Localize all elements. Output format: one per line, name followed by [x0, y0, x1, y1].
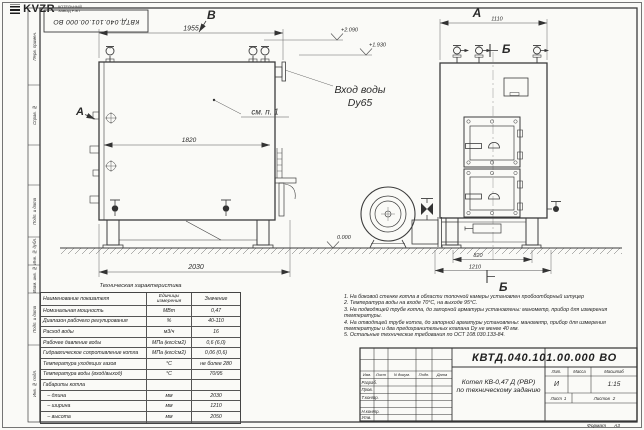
dim-1820: 1820	[182, 137, 197, 144]
spec-cell-unit: мм	[147, 391, 192, 402]
svg-text:Б: Б	[502, 42, 511, 56]
top-left-stamp: КВТД.040.101.00.000 ВО	[44, 10, 148, 32]
water-inlet-flange	[275, 62, 286, 81]
section-b-bottom: Б	[487, 270, 508, 294]
tb-col-list: Лист	[374, 371, 388, 379]
frame-label-perv-primen: Перв. примен.	[28, 8, 40, 85]
dim-1210: 1210	[469, 265, 482, 271]
svg-text:+1.930: +1.930	[369, 43, 387, 49]
spec-row: – длина мм 2030	[41, 391, 240, 402]
spec-cell-name: – длина	[41, 391, 147, 402]
tb-col-data: Дата	[432, 371, 452, 379]
technical-notes: 1. На боковой стенке котла в области топ…	[344, 294, 637, 339]
tb-row-razrab: Разраб.	[360, 379, 390, 387]
spec-row: Рабочее давление воды МПа (кгс/см2) 0,6 …	[41, 338, 240, 349]
spec-row: – ширина мм 1210	[41, 401, 240, 412]
spec-cell-name: – высота	[41, 412, 147, 423]
title-block-product-title: Котел КВ-0,47 Д (РВР) по техническому за…	[452, 374, 545, 400]
svg-text:+2.090: +2.090	[341, 28, 359, 34]
spec-table-title: Техническая характеристика	[40, 283, 241, 292]
spec-cell-name: Температура воды (вход/выход)	[41, 370, 147, 381]
fan-duct-valve	[421, 199, 433, 221]
spec-cell-value: 70/95	[192, 370, 240, 381]
tb-lit-label: Лит.	[545, 367, 568, 376]
frame-label-vzam-inv: Взам. инв. №	[28, 265, 40, 293]
note-line: 4. На отводящей трубе котла, до запорной…	[344, 320, 637, 333]
boiler-front-view	[361, 46, 561, 263]
frame-label-podp-data-1: Подп. и дата	[28, 185, 40, 237]
tb-col-podp: Подп.	[416, 371, 432, 379]
spec-cell-unit: мм	[147, 401, 192, 412]
spec-cell-unit: °С	[147, 370, 192, 381]
spec-row: – высота мм 2050	[41, 412, 240, 423]
drain-valves-side	[110, 200, 231, 216]
spec-cell-unit	[147, 380, 192, 391]
spec-cell-name: Рабочее давление воды	[41, 338, 147, 349]
note-line: 5. Остальные технические требования по О…	[344, 332, 637, 338]
dim-1955: 1955	[183, 26, 199, 33]
frame-label-inv-dubl: Инв. № дубл.	[28, 237, 40, 265]
spec-cell-name: – ширина	[41, 401, 147, 412]
spec-cell-name: Расход воды	[41, 327, 147, 338]
dim-820: 820	[473, 253, 483, 259]
side-bracket	[275, 148, 296, 216]
spec-cell-value: 0,06 (0,6)	[192, 348, 240, 359]
frame-label-inv-podl: Инв. № подл.	[28, 345, 40, 422]
svg-text:0.000: 0.000	[337, 235, 352, 241]
spec-row: Температура воды (вход/выход) °С 70/95	[41, 370, 240, 381]
blower-fan	[361, 187, 458, 248]
elevation-upper: +2.090	[264, 28, 359, 41]
spec-cell-name: Габариты котла	[41, 380, 147, 391]
callout-see-note: см. п. 1	[251, 108, 278, 117]
safety-valves-front	[453, 46, 549, 64]
tb-mass-label: Масса	[568, 367, 591, 376]
spec-cell-value: 40-110	[192, 317, 240, 328]
spec-cell-name: Диапазон рабочего регулирования	[41, 317, 147, 328]
tb-row-nkontr: Н.контр.	[360, 408, 390, 415]
spec-cell-unit: мм	[147, 412, 192, 423]
spec-header-row: Наименование показателя Единицы измерени…	[41, 293, 240, 306]
dimensions-side: 1955 1820 2030	[99, 26, 290, 278]
spec-cell-name: Температура уходящих газов	[41, 359, 147, 370]
spec-col-value: Значение	[192, 293, 240, 306]
front-legs	[442, 218, 541, 248]
frame-label-podp-data-2: Подп. и дата	[28, 293, 40, 345]
crosshair-marks	[105, 112, 117, 172]
elevation-lower: +1.930	[299, 43, 387, 56]
tb-sheets-cell: Листов2	[572, 393, 637, 403]
spec-cell-value: 1210	[192, 401, 240, 412]
tb-row-utv: Утв.	[360, 415, 390, 422]
spec-row: Гидравлическое сопротивление котла МПа (…	[41, 348, 240, 359]
view-label-a-front: А	[472, 6, 482, 20]
spec-cell-value: 0,47	[192, 306, 240, 317]
spec-cell-value: не более 280	[192, 359, 240, 370]
view-label-a-left: А	[75, 106, 84, 118]
spec-cell-value: 2030	[192, 391, 240, 402]
ground-line	[60, 248, 622, 254]
spec-row: Диапазон рабочего регулирования % 40-110	[41, 317, 240, 328]
tb-row-prov: Пров.	[360, 386, 390, 394]
tb-scale-label: Масштаб	[591, 367, 637, 376]
svg-text:Б: Б	[499, 280, 508, 294]
spec-cell-value: 16	[192, 327, 240, 338]
spec-cell-unit: °С	[147, 359, 192, 370]
dim-2030: 2030	[187, 264, 204, 271]
spec-cell-unit: м3/ч	[147, 327, 192, 338]
spec-cell-value	[192, 380, 240, 391]
spec-cell-value: 0,6 (6,0)	[192, 338, 240, 349]
tb-lit-value: И	[545, 376, 568, 393]
boiler-side-view	[90, 47, 296, 249]
upper-furnace-door	[464, 117, 523, 167]
spec-row: Расход воды м3/ч 16	[41, 327, 240, 338]
frame-label-sprav: Справ. №	[28, 85, 40, 145]
title-block-doc-number: КВТД.040.101.00.000 ВО	[452, 348, 637, 367]
spec-table: Техническая характеристика Наименование …	[40, 283, 241, 424]
spec-row: Температура уходящих газов °С не более 2…	[41, 359, 240, 370]
tb-col-izm: Изм.	[360, 371, 374, 379]
tb-row-tkontr: Т.контр.	[360, 394, 390, 401]
spec-cell-unit: МПа (кгс/см2)	[147, 338, 192, 349]
spec-col-unit: Единицы измерения	[147, 293, 192, 306]
elevation-ground: 0.000	[327, 235, 352, 248]
stamp-doc-number: КВТД.040.101.00.000 ВО	[53, 18, 139, 25]
roof-valves-side	[106, 47, 269, 63]
tb-scale-value: 1:15	[591, 376, 637, 393]
spec-row: Габариты котла	[41, 380, 240, 391]
tb-sheet-cell: Лист1	[545, 393, 572, 403]
spec-cell-unit: МВт	[147, 306, 192, 317]
spec-cell-value: 2050	[192, 412, 240, 423]
tb-col-ndokum: N докум.	[388, 371, 416, 379]
note-line: 3. На подводящей трубе котла, до запорно…	[344, 307, 637, 320]
spec-cell-unit: %	[147, 317, 192, 328]
spec-col-name: Наименование показателя	[41, 293, 147, 306]
drawing-sheet: 1955 1820 2030 1110 820 1210 В А А Б	[0, 0, 644, 430]
dim-1110: 1110	[491, 17, 503, 23]
side-drain-valve-front	[547, 202, 561, 213]
view-label-b: В	[207, 8, 216, 22]
spec-row: Номинальная мощность МВт 0,47	[41, 306, 240, 317]
side-legs	[103, 220, 273, 248]
inlet-label-line1: Вход воды	[335, 84, 386, 96]
spec-cell-unit: МПа (кгс/см2)	[147, 348, 192, 359]
inlet-label-line2: Dy65	[348, 97, 373, 109]
spec-cell-name: Номинальная мощность	[41, 306, 147, 317]
lower-furnace-door	[464, 169, 523, 217]
spec-cell-name: Гидравлическое сопротивление котла	[41, 348, 147, 359]
format-note: Формат А3	[570, 422, 637, 430]
spec-rows: Номинальная мощность МВт 0,47 Диапазон р…	[41, 306, 240, 423]
